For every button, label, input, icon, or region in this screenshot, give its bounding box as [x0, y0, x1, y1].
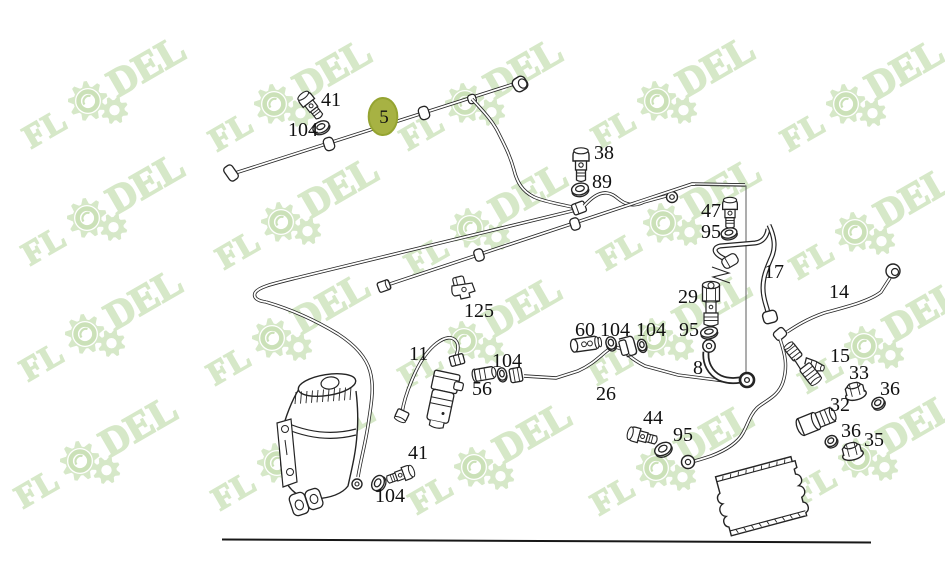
svg-text:56: 56 — [472, 378, 492, 400]
svg-text:38: 38 — [594, 142, 614, 164]
svg-text:95: 95 — [679, 319, 699, 341]
svg-text:36: 36 — [841, 420, 861, 442]
svg-text:26: 26 — [596, 383, 616, 405]
svg-text:95: 95 — [701, 221, 721, 243]
svg-text:47: 47 — [701, 200, 721, 222]
svg-text:104: 104 — [600, 319, 630, 341]
svg-text:33: 33 — [849, 362, 869, 384]
svg-text:29: 29 — [678, 286, 698, 308]
svg-text:104: 104 — [375, 485, 405, 507]
svg-text:95: 95 — [673, 424, 693, 446]
svg-text:104: 104 — [492, 350, 522, 372]
svg-text:104: 104 — [288, 119, 318, 141]
svg-text:11: 11 — [409, 343, 428, 365]
svg-text:14: 14 — [829, 281, 849, 303]
svg-text:5: 5 — [379, 107, 389, 128]
svg-text:36: 36 — [880, 378, 900, 400]
svg-text:8: 8 — [693, 357, 703, 379]
svg-text:32: 32 — [830, 394, 850, 416]
svg-text:41: 41 — [408, 442, 428, 464]
svg-text:89: 89 — [592, 171, 612, 193]
svg-text:17: 17 — [764, 261, 784, 283]
svg-text:15: 15 — [830, 345, 850, 367]
svg-text:41: 41 — [321, 89, 341, 111]
svg-text:44: 44 — [643, 407, 663, 429]
svg-text:125: 125 — [464, 300, 494, 322]
svg-text:60: 60 — [575, 319, 595, 341]
svg-text:35: 35 — [864, 429, 884, 451]
svg-text:104: 104 — [636, 319, 666, 341]
